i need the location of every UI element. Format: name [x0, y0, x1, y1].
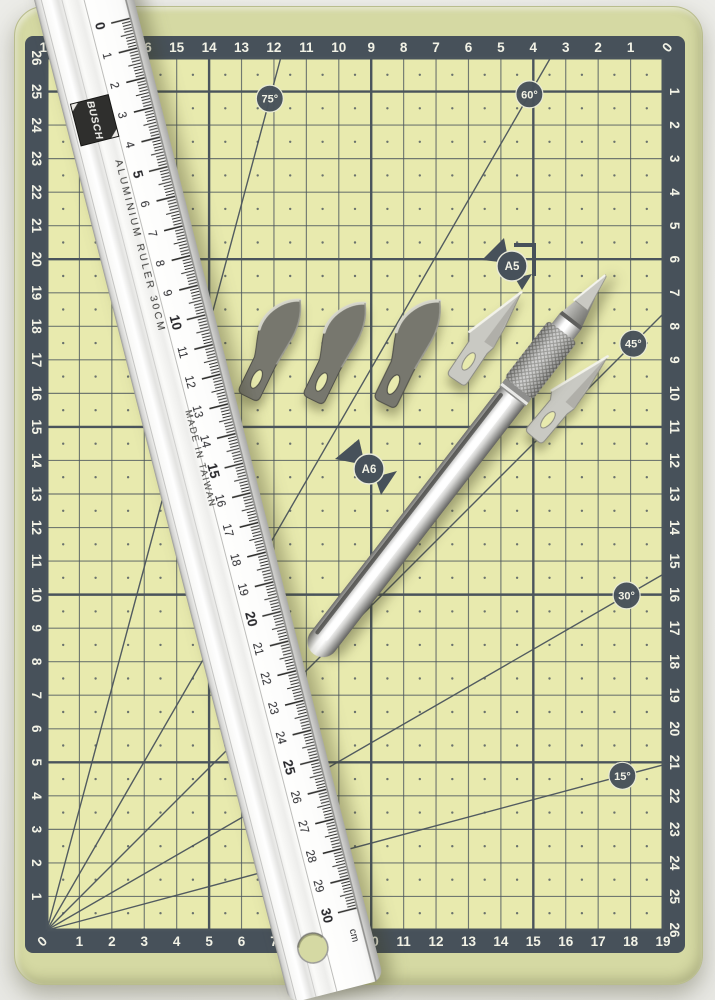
busch-logo-text: BUSCH: [84, 99, 105, 141]
photo-cutting-mat-scene: 75° 60° 45° 30° 15° A5 A6191817161514131…: [0, 0, 715, 1000]
